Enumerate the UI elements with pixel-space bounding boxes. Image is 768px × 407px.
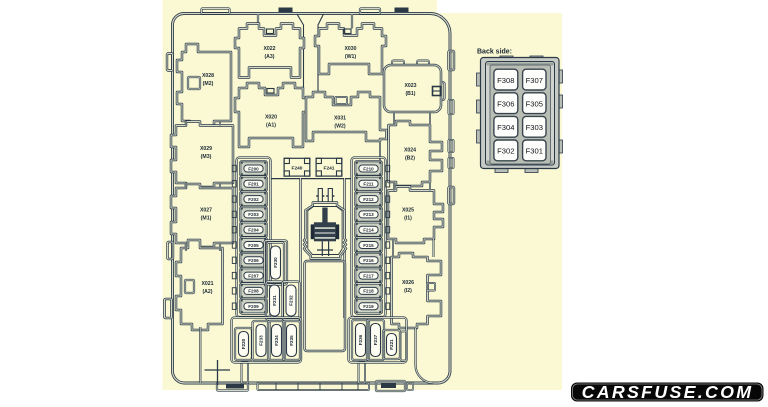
svg-text:X024: X024: [404, 148, 416, 154]
svg-text:X031: X031: [334, 116, 346, 122]
svg-text:F203: F203: [248, 212, 259, 217]
svg-text:F231: F231: [272, 295, 277, 306]
svg-text:F236: F236: [358, 334, 363, 345]
svg-text:F220: F220: [241, 338, 246, 349]
svg-text:F221: F221: [389, 339, 394, 350]
svg-text:(W2): (W2): [334, 124, 346, 130]
svg-text:Back side:: Back side:: [477, 49, 512, 56]
svg-text:X026: X026: [402, 280, 414, 286]
svg-text:F230: F230: [273, 257, 278, 268]
svg-text:F232: F232: [289, 295, 294, 306]
svg-text:(I1): (I1): [404, 216, 412, 222]
svg-text:F218: F218: [363, 289, 374, 294]
svg-text:F205: F205: [248, 243, 259, 248]
svg-text:(A2): (A2): [202, 289, 212, 295]
svg-text:X023: X023: [404, 83, 416, 89]
svg-text:F211: F211: [363, 182, 374, 187]
svg-text:F306: F306: [497, 99, 514, 108]
svg-text:F219: F219: [363, 304, 374, 309]
svg-text:F213: F213: [363, 212, 374, 217]
svg-text:X022: X022: [263, 46, 275, 52]
svg-text:CARSFUSE.COM: CARSFUSE.COM: [582, 382, 754, 402]
svg-text:F235: F235: [289, 335, 294, 346]
svg-text:F301: F301: [526, 147, 543, 156]
svg-text:(A1): (A1): [266, 123, 276, 129]
svg-text:F305: F305: [526, 99, 543, 108]
svg-text:F214: F214: [363, 228, 374, 233]
svg-text:F302: F302: [497, 147, 514, 156]
svg-text:F208: F208: [248, 289, 259, 294]
svg-text:F234: F234: [274, 335, 279, 346]
svg-text:F237: F237: [373, 334, 378, 345]
svg-text:X021: X021: [201, 281, 213, 287]
svg-text:X030: X030: [344, 46, 356, 52]
svg-text:X025: X025: [402, 208, 414, 214]
svg-text:F241: F241: [324, 166, 335, 172]
svg-text:X027: X027: [200, 208, 212, 214]
svg-text:F217: F217: [363, 273, 374, 278]
svg-text:F308: F308: [497, 76, 514, 85]
svg-text:F209: F209: [248, 304, 259, 309]
svg-text:(I2): (I2): [404, 288, 412, 294]
svg-text:F304: F304: [497, 123, 514, 132]
svg-text:F200: F200: [248, 166, 259, 171]
svg-text:F204: F204: [248, 228, 259, 233]
svg-text:(B2): (B2): [405, 156, 415, 162]
svg-text:F240: F240: [292, 166, 303, 172]
svg-text:F206: F206: [248, 258, 259, 263]
svg-text:(W1): (W1): [345, 54, 357, 60]
svg-text:(A3): (A3): [264, 54, 274, 60]
svg-text:X029: X029: [200, 146, 212, 152]
svg-text:F201: F201: [248, 182, 259, 187]
svg-text:F233: F233: [259, 335, 264, 346]
svg-text:X020: X020: [265, 115, 277, 121]
svg-text:X028: X028: [202, 73, 214, 79]
svg-text:(M3): (M3): [201, 154, 212, 160]
svg-text:(M1): (M1): [201, 216, 212, 222]
svg-text:(B1): (B1): [405, 91, 415, 97]
svg-text:F303: F303: [526, 123, 543, 132]
svg-text:F202: F202: [248, 197, 259, 202]
svg-text:F216: F216: [363, 258, 374, 263]
svg-text:F212: F212: [363, 197, 374, 202]
svg-text:F210: F210: [363, 166, 374, 171]
svg-text:F307: F307: [526, 76, 543, 85]
svg-text:(M2): (M2): [203, 81, 214, 87]
svg-text:F207: F207: [248, 273, 259, 278]
svg-text:F215: F215: [363, 243, 374, 248]
